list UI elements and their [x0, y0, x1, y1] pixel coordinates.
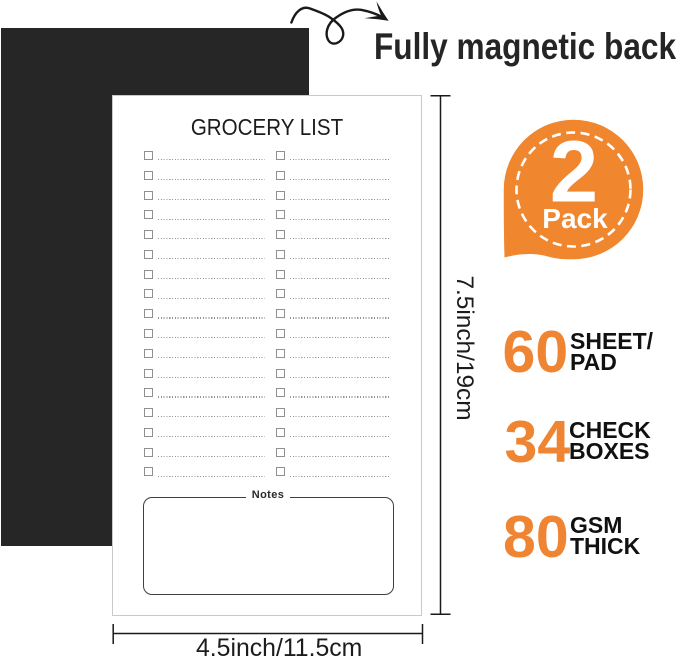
svg-text:Pack: Pack: [542, 203, 608, 234]
